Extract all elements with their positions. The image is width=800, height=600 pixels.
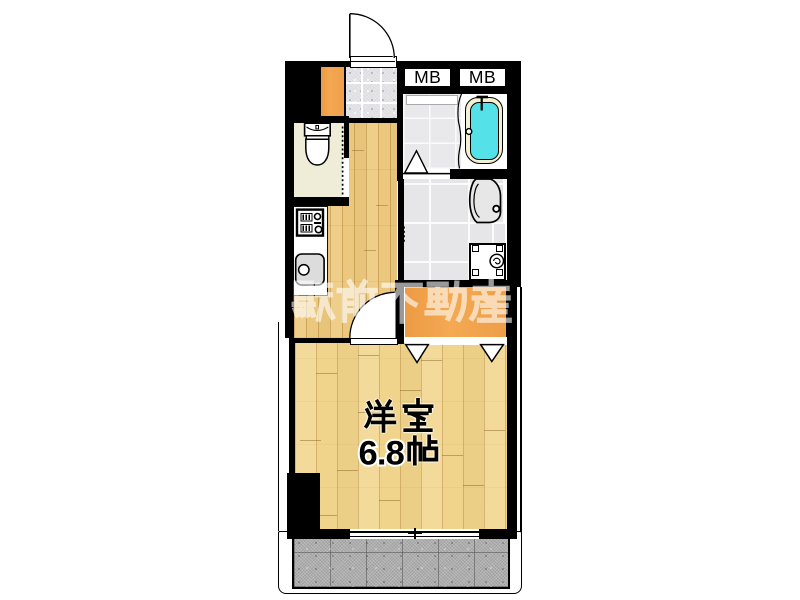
svg-text:6.8: 6.8 — [359, 435, 405, 473]
